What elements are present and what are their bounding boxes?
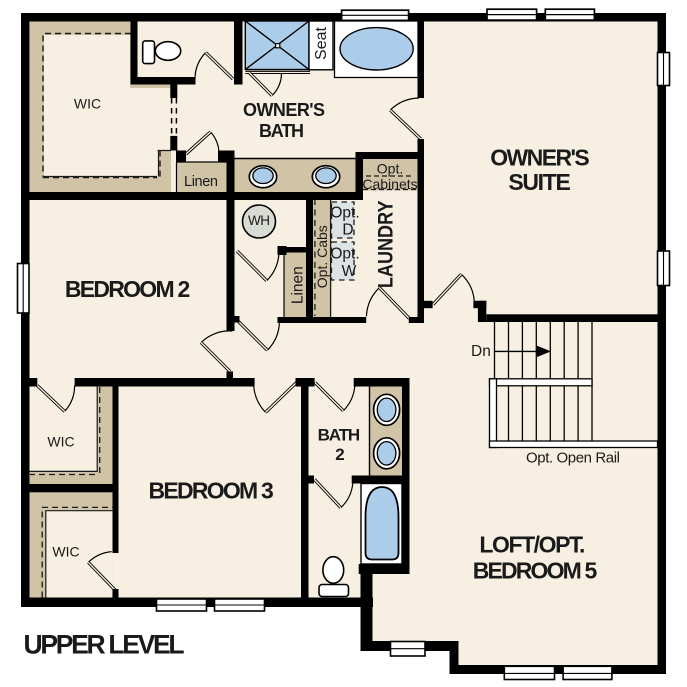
svg-text:UPPER LEVEL: UPPER LEVEL [24, 630, 185, 660]
svg-text:WIC: WIC [47, 434, 74, 450]
svg-text:BEDROOM 3: BEDROOM 3 [149, 478, 274, 504]
svg-text:2: 2 [335, 445, 344, 464]
svg-text:BEDROOM 2: BEDROOM 2 [65, 276, 191, 302]
svg-text:Opt.: Opt. [330, 246, 359, 263]
svg-text:LOFT/OPT.: LOFT/OPT. [479, 532, 585, 558]
svg-text:W: W [342, 263, 357, 280]
svg-text:SUITE: SUITE [508, 169, 571, 195]
svg-text:Linen: Linen [184, 174, 218, 190]
svg-text:BEDROOM 5: BEDROOM 5 [473, 558, 598, 584]
svg-text:Cabinets: Cabinets [362, 176, 417, 192]
svg-text:OWNER'S: OWNER'S [490, 145, 590, 171]
svg-text:LAUNDRY: LAUNDRY [374, 201, 398, 289]
svg-text:Dn: Dn [471, 343, 491, 360]
svg-text:Opt. Open Rail: Opt. Open Rail [526, 450, 620, 467]
svg-text:Opt.: Opt. [377, 161, 403, 177]
svg-text:WH: WH [248, 213, 270, 228]
svg-text:Opt. Cabs: Opt. Cabs [314, 225, 330, 288]
svg-text:Linen: Linen [290, 266, 307, 304]
svg-text:BATH: BATH [318, 426, 361, 445]
svg-text:Opt.: Opt. [330, 204, 359, 221]
svg-text:WIC: WIC [52, 544, 79, 560]
svg-text:OWNER'S: OWNER'S [243, 100, 325, 120]
svg-text:BATH: BATH [259, 121, 304, 141]
svg-text:Seat: Seat [313, 26, 330, 59]
svg-text:WIC: WIC [74, 96, 101, 112]
svg-text:D: D [342, 222, 353, 239]
